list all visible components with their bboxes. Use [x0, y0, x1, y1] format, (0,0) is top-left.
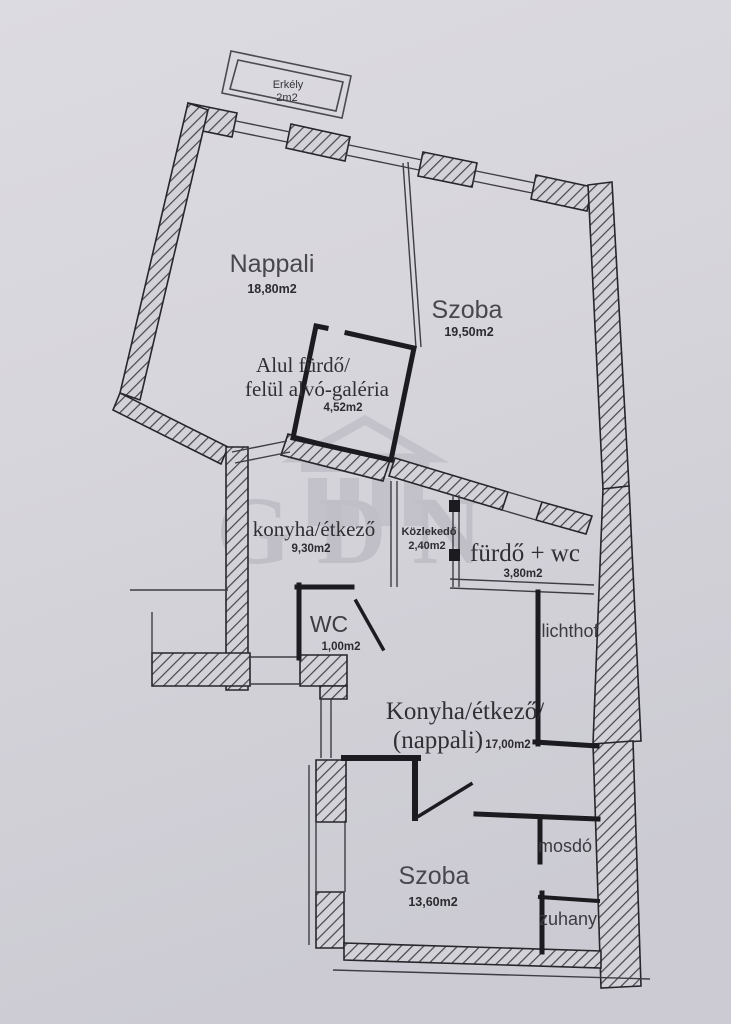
label-galeria-line2: felül alvó-galéria [245, 377, 390, 401]
area-szoba-lower: 13,60m2 [408, 895, 457, 909]
label-szoba-upper: Szoba [432, 296, 503, 324]
area-konyha-etkezo: 9,30m2 [291, 543, 330, 555]
area-konyha-nappali: 17,00m2 [485, 739, 530, 751]
label-konyha-etkezo: konyha/étkező [253, 517, 375, 541]
floor-plan-drawing: GDN [0, 0, 731, 1024]
wall-under-wc [300, 655, 347, 686]
label-konyha-nappali-line1: Konyha/étkező/ [386, 698, 544, 725]
label-zuhany: zuhany [539, 909, 597, 929]
area-nappali: 18,80m2 [247, 282, 296, 296]
label-wc: WC [310, 611, 348, 637]
label-szoba-lower: Szoba [399, 862, 470, 890]
label-mosdo: mosdó [538, 836, 592, 856]
label-galeria-line1: Alul fürdő/ [256, 353, 350, 377]
label-konyha-nappali-line2: (nappali) [393, 727, 483, 754]
area-galeria: 4,52m2 [323, 402, 362, 414]
area-erkely: 2m2 [276, 92, 297, 104]
wall-under-wc-step [320, 686, 347, 699]
area-szoba-upper: 19,50m2 [444, 325, 493, 339]
floor-plan-page: GDN [0, 0, 731, 1024]
label-lichthof: lichthof [541, 621, 599, 641]
area-kozlekedo: 2,40m2 [408, 540, 445, 552]
wall-bottomleft-band [152, 653, 250, 686]
wall-szoba-left-upper [316, 760, 346, 822]
furdo-door-jamb-bottom [449, 549, 460, 561]
label-erkely: Erkély [273, 79, 304, 91]
wall-szoba-left-lower [316, 892, 344, 948]
area-wc: 1,00m2 [321, 641, 360, 653]
label-furdo-wc: fürdő + wc [470, 540, 580, 567]
area-furdo-wc: 3,80m2 [503, 568, 542, 580]
label-nappali: Nappali [230, 250, 315, 278]
furdo-door-jamb-top [449, 500, 460, 512]
label-kozlekedo: Közlekedő [401, 526, 456, 538]
